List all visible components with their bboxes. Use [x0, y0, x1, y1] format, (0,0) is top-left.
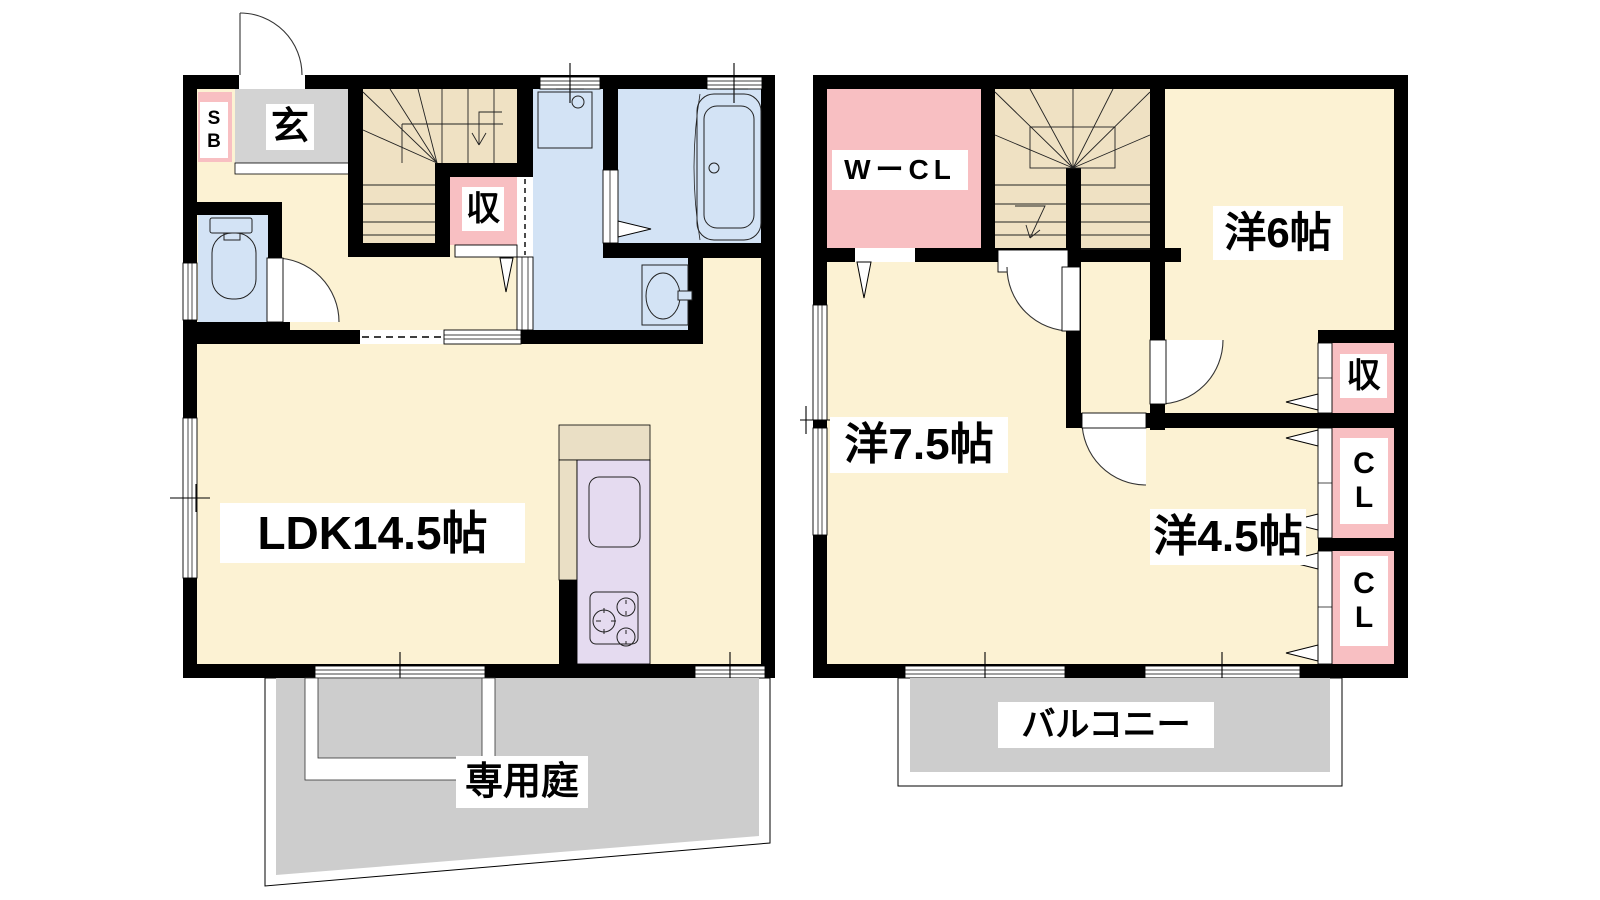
entrance-step: [235, 163, 352, 174]
toilet-room-fill: [198, 215, 268, 325]
floorplan-canvas: S B 玄 収 LDK14.5帖 専用庭 WーCL 洋6帖 洋7.5帖 洋4.5…: [0, 0, 1600, 900]
closet2-label: C L: [1340, 556, 1388, 646]
balcony-label: バルコニー: [998, 702, 1214, 748]
room75-label: 洋7.5帖: [830, 417, 1008, 473]
stairs2-right-fill: [1081, 168, 1150, 262]
stairs1-lower-fill: [363, 163, 435, 243]
kitchen-unit: [559, 425, 650, 664]
room45-label: 洋4.5帖: [1150, 509, 1306, 565]
storage1-label: 収: [462, 187, 504, 231]
ldk-label: LDK14.5帖: [220, 503, 525, 563]
washroom-door: [517, 257, 533, 330]
room6-label: 洋6帖: [1213, 206, 1343, 260]
wcl-opening: [855, 248, 915, 262]
closet1-label-line2: L: [1355, 483, 1373, 513]
bathroom-door: [603, 170, 618, 243]
entrance-door: [239, 13, 305, 89]
garden-label: 専用庭: [456, 756, 588, 808]
closet1-label: C L: [1340, 438, 1388, 524]
shoe-box-label: S B: [200, 102, 228, 158]
stairs2-upper-fill: [995, 89, 1150, 168]
shoe-box-label-line1: S: [208, 109, 221, 128]
closet2-label-line1: C: [1353, 569, 1375, 599]
storage1-door: [455, 245, 517, 257]
storage2-label: 収: [1340, 354, 1387, 398]
bathroom-fill: [618, 89, 761, 243]
shoe-box-label-line2: B: [207, 132, 221, 151]
closet1-label-line1: C: [1353, 449, 1375, 479]
entrance-label: 玄: [266, 104, 314, 150]
walk-in-closet-label: WーCL: [832, 150, 968, 190]
closet2-label-line2: L: [1355, 603, 1373, 633]
